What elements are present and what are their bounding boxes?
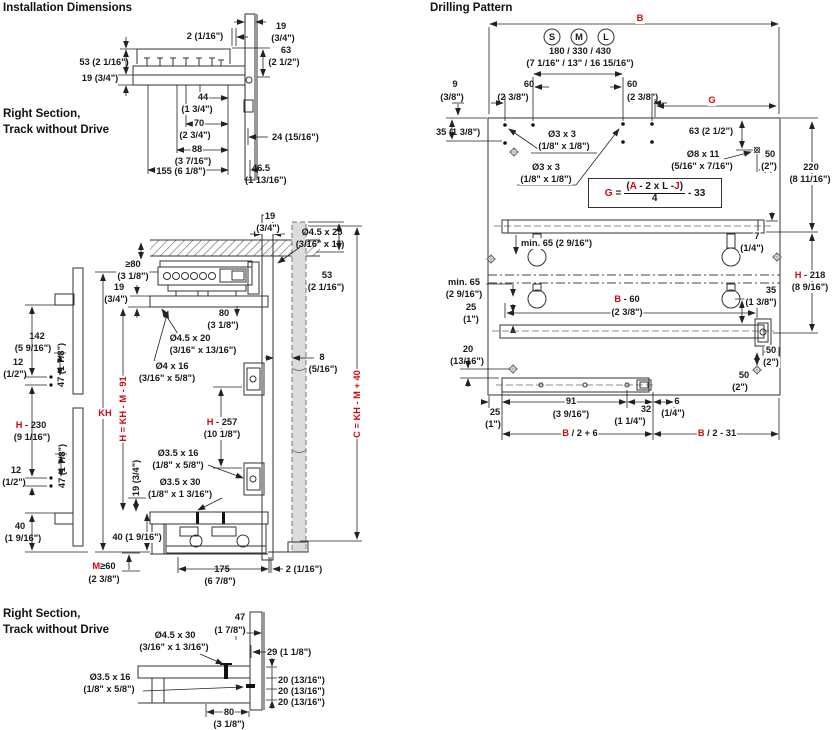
dim-label: 12 <box>13 357 23 368</box>
dim-label: H - 218 <box>794 270 827 281</box>
dim-label: 35 (1 3/8") <box>436 127 480 138</box>
installation-section-drawing <box>25 215 362 573</box>
dim-label: (3/4") <box>255 223 281 234</box>
drilling-pattern-title: Drilling Pattern <box>430 2 512 15</box>
dim-label: 32 <box>640 404 652 415</box>
dim-label: 35 <box>765 285 777 296</box>
dim-label: M≥60 <box>92 561 115 572</box>
dim-label: (2") <box>731 382 749 393</box>
dim-label: 8 <box>319 352 324 363</box>
dim-label: H - 257 <box>206 417 239 428</box>
dim-label: (1 7/8") <box>213 625 246 636</box>
dim-label: (3/16" x 1") <box>296 239 345 250</box>
dim-label: 63 (2 1/2") <box>689 126 733 137</box>
dim-label: (1/4") <box>739 243 765 254</box>
dim-label: min. 65 <box>448 277 480 288</box>
dim-label: (8 11/16") <box>788 174 831 185</box>
right-section-label-bottom: Right Section, <box>3 608 80 621</box>
dim-label: (5/16" x 7/16") <box>670 161 734 172</box>
dim-label: (1/8" x 5/8") <box>83 684 134 695</box>
dim-label: 19 <box>114 282 124 293</box>
dim-label: (7 1/16" / 13" / 16 15/16") <box>526 58 633 69</box>
dim-label: (3/4") <box>104 294 128 305</box>
dim-label: Ø4.5 x 25 <box>302 227 343 238</box>
dim-label: (5 9/16") <box>15 343 51 354</box>
dim-label: 20 (13/16") <box>278 675 325 686</box>
dim-label: Ø4 x 16 <box>154 361 189 372</box>
dim-label: C = KH - M + 40 <box>352 369 363 439</box>
dim-label: (8 9/16") <box>791 282 829 293</box>
size-m-label: M <box>575 32 583 43</box>
dim-label: 88 <box>191 144 203 155</box>
dim-label: 40 (1 9/16") <box>111 532 162 543</box>
dim-label: (3 1/8") <box>213 719 244 730</box>
technical-drawing-page: Installation Dimensions Drilling Pattern… <box>0 0 835 730</box>
dim-label: (3/4") <box>271 33 295 44</box>
dim-label: (1") <box>463 314 479 325</box>
dim-label: 60 <box>524 79 534 90</box>
dim-label: Ø4.5 x 20 <box>169 333 212 344</box>
dim-label: (1/2") <box>3 369 27 380</box>
dim-label: min. 65 (2 9/16") <box>520 238 593 249</box>
dim-label: 29 (1 1/8") <box>267 647 311 658</box>
dim-label: 19 <box>264 211 276 222</box>
dim-label: 50 <box>764 149 776 160</box>
dim-label: Ø3 x 3 <box>531 162 561 173</box>
dim-label: (2 3/8") <box>497 92 528 103</box>
dim-label: (2 3/8") <box>610 307 643 318</box>
dim-label: (1/8" x 1/8") <box>537 141 590 152</box>
track-without-drive-label-bottom: Track without Drive <box>3 624 109 637</box>
dim-label: (2 3/4") <box>178 130 211 141</box>
formula-equals: = <box>615 188 621 199</box>
dim-label: 12 <box>11 465 21 476</box>
dim-label: (1/4") <box>661 408 685 419</box>
bottom-right-section-drawing <box>138 612 277 717</box>
dim-label: 50 <box>765 345 777 356</box>
dim-label: 63 <box>281 45 291 56</box>
dim-label: Ø8 x 11 <box>686 149 721 160</box>
dim-label: 19 <box>276 21 286 32</box>
dim-label: 53 (2 1/16") <box>79 57 128 68</box>
formula-fraction: (A - 2 x L -J) 4 <box>624 182 685 204</box>
dim-label: 20 <box>463 344 473 355</box>
dim-label: (1/8" x 1 3/16") <box>148 489 212 500</box>
dim-label: (3/8") <box>440 92 464 103</box>
dim-label: 40 <box>15 521 25 532</box>
dim-label: 7 <box>753 231 760 242</box>
dim-label: (13/16") <box>450 356 484 367</box>
dim-label: B / 2 + 6 <box>561 428 598 439</box>
dim-label: (3 1/8") <box>207 320 238 331</box>
dim-label: (6 7/8") <box>204 576 235 587</box>
dim-label: 20 (13/16") <box>278 686 325 697</box>
dim-label: (9 1/16") <box>14 432 50 443</box>
dim-label: 6 <box>673 396 680 407</box>
size-s-label: S <box>549 32 555 43</box>
dim-label: (2 3/8") <box>88 574 119 585</box>
dim-label: H = KH - M - 91 <box>118 375 129 442</box>
dim-label: (2 1/16") <box>308 282 344 293</box>
dim-label: (10 1/8") <box>203 429 241 440</box>
dim-label: Ø3.5 x 30 <box>160 477 201 488</box>
dim-label: 50 <box>738 370 750 381</box>
dim-label: Ø3.5 x 16 <box>90 672 131 683</box>
dim-label: 44 <box>197 92 209 103</box>
dim-label: Ø3 x 3 <box>547 129 577 140</box>
dim-label: Ø3.5 x 16 <box>158 448 199 459</box>
dim-label: 2 (1/16") <box>286 564 322 575</box>
dim-label: (2") <box>760 161 778 172</box>
dim-label: KH <box>97 408 112 419</box>
dim-label: 60 <box>627 79 637 90</box>
dim-label: 47 <box>234 612 246 623</box>
dim-label: (3/16" x 5/8") <box>138 373 196 384</box>
size-l-label: L <box>603 32 609 43</box>
dim-label: B / 2 - 31 <box>697 428 737 439</box>
dim-label: B - 60 <box>613 294 640 305</box>
dim-label: (2 1/2") <box>268 57 299 68</box>
dim-label: 47 (1 7/8") <box>56 343 67 387</box>
dim-label: 19 (3/4") <box>82 73 118 84</box>
dim-label: Ø4.5 x 30 <box>155 630 196 641</box>
installation-dimensions-title: Installation Dimensions <box>3 2 132 15</box>
dim-label: (1 3/4") <box>180 104 213 115</box>
dim-label: ≥80 <box>124 259 141 270</box>
formula-g: G <box>605 188 613 199</box>
dim-label: 53 <box>322 270 332 281</box>
dim-label: 9 <box>452 79 457 90</box>
dim-label: 25 <box>490 407 500 418</box>
dim-label: 175 <box>214 564 230 575</box>
track-without-drive-label-top: Track without Drive <box>3 124 109 137</box>
dim-label: (1 3/8") <box>744 297 777 308</box>
dim-label: 70 <box>193 118 205 129</box>
dim-label: (5/16") <box>309 364 338 375</box>
g-formula: G = (A - 2 x L -J) 4 - 33 <box>588 178 722 208</box>
dim-label: 46.5 <box>252 163 270 174</box>
dim-label: 80 <box>223 707 235 718</box>
dim-label: (2 9/16") <box>446 289 482 300</box>
dim-label: (1") <box>485 419 501 430</box>
right-section-label-top: Right Section, <box>3 108 80 121</box>
dim-label: (3/16" x 13/16") <box>169 345 238 356</box>
dim-label: 25 <box>466 302 476 313</box>
dim-label: 155 (6 1/8") <box>155 166 206 177</box>
dim-label: 2 (1/16") <box>187 31 223 42</box>
dim-label: (1/8" x 1/8") <box>519 174 572 185</box>
dim-label: 20 (13/16") <box>278 697 325 708</box>
dim-label: (3 9/16") <box>553 409 589 420</box>
dim-label: 80 <box>219 308 229 319</box>
dim-label: 19 (3/4") <box>131 459 142 497</box>
dim-label: H - 230 <box>16 420 47 431</box>
dim-label: (3/16" x 1 3/16") <box>139 642 208 653</box>
dim-label: 24 (15/16") <box>272 132 319 143</box>
dim-label: 220 <box>802 162 820 173</box>
dim-label: B <box>636 13 645 24</box>
dim-label: 47 (1 7/8") <box>57 444 68 488</box>
formula-tail: - 33 <box>688 188 705 199</box>
dim-label: (1 9/16") <box>5 533 41 544</box>
dim-label: (1/8" x 5/8") <box>152 460 203 471</box>
dim-label: (2 3/8") <box>627 92 658 103</box>
dim-label: 142 <box>29 331 45 342</box>
dim-label: 180 / 330 / 430 <box>549 46 611 57</box>
drawing-canvas <box>0 0 835 730</box>
dim-label: (1 13/16") <box>245 175 287 186</box>
dim-label: (1 1/4") <box>614 416 645 427</box>
dim-label: G <box>707 95 716 106</box>
dim-label: (1/2") <box>2 477 26 488</box>
dim-label: 91 <box>565 396 577 407</box>
dim-label: (3 7/16") <box>174 156 212 167</box>
dim-label: (2") <box>762 357 780 368</box>
dim-label: (3 1/8") <box>116 271 149 282</box>
